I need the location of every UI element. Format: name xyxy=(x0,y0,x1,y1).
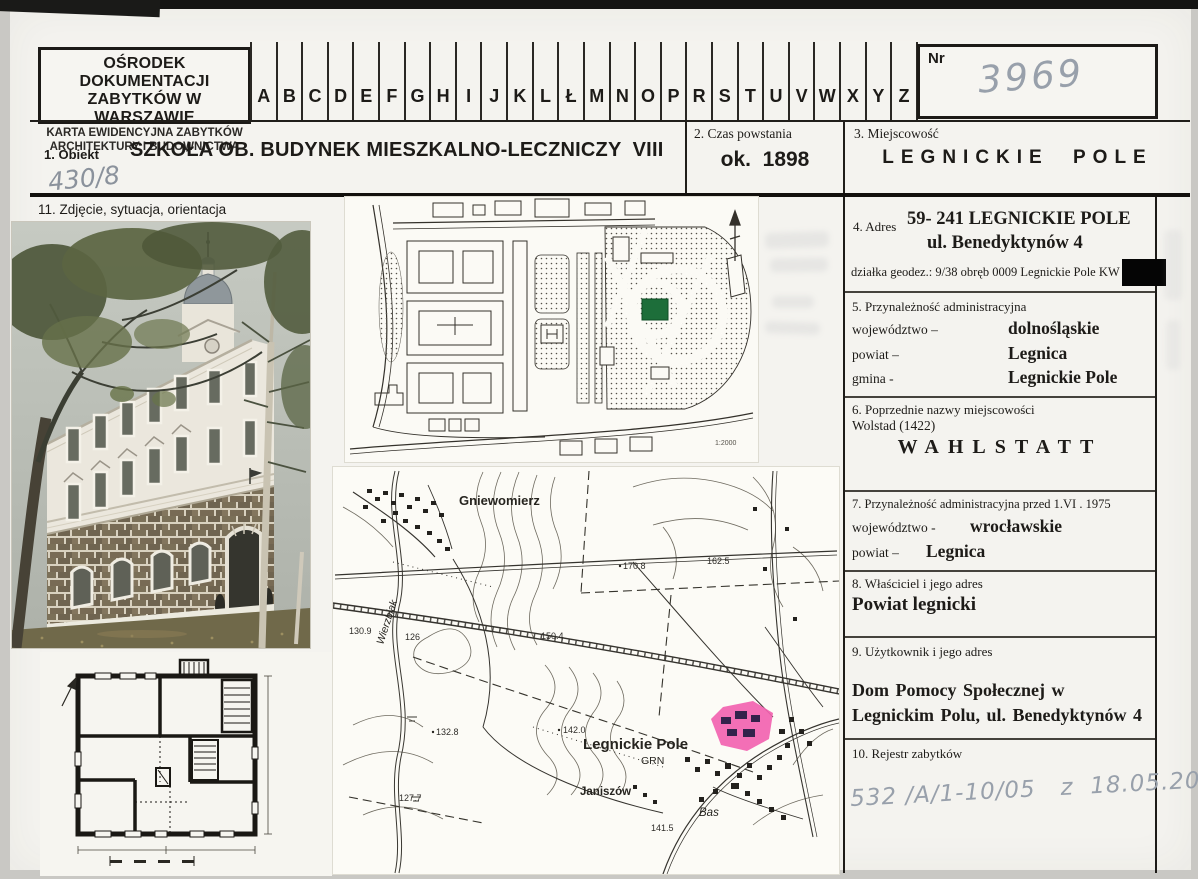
admin-before-row: województwo - wrocławskie xyxy=(852,516,1062,537)
index-letter: R xyxy=(685,42,711,120)
former-name-note: Wolstad (1422) xyxy=(852,418,935,434)
index-letter: O xyxy=(634,42,660,120)
index-letter: Ł xyxy=(557,42,583,120)
field-przynaleznosc-przed-1975: 7. Przynależność administracyjna przed 1… xyxy=(845,492,1155,572)
field-adres: 4. Adres 59- 241 LEGNICKIE POLE ul. Bene… xyxy=(845,197,1155,293)
map-label-grn: GRN xyxy=(641,755,664,767)
miejscowosc-label: 3. Miejscowość xyxy=(854,126,939,142)
index-letter: Z xyxy=(890,42,916,120)
institution-line1: OŚRODEK DOKUMENTACJI xyxy=(41,55,248,91)
field-wlasciciel: 8. Właściciel i jego adres Powiat legnic… xyxy=(845,572,1155,638)
map-label-gniewomierz: Gniewomierz xyxy=(459,493,540,508)
index-letter: S xyxy=(711,42,737,120)
scanned-heritage-card: OŚRODEK DOKUMENTACJI ZABYTKÓW W WARSZAWI… xyxy=(0,0,1198,879)
czas-value: ok. 1898 xyxy=(687,148,843,172)
index-letter: Y xyxy=(865,42,891,120)
index-letter: V xyxy=(788,42,814,120)
scan-edge-top xyxy=(0,0,1198,9)
map-label-bas: Bas xyxy=(699,807,719,819)
redaction-box xyxy=(1122,259,1166,286)
index-letter: F xyxy=(378,42,404,120)
owner-value: Powiat legnicki xyxy=(852,594,976,616)
index-letter: G xyxy=(404,42,430,120)
map-label-janiszow: Janiszów xyxy=(580,786,631,798)
index-letter: U xyxy=(762,42,788,120)
register-label: 10. Rejestr zabytków xyxy=(852,746,962,762)
highlighted-building-green xyxy=(642,299,668,320)
elevation-point: 127.7 xyxy=(399,793,422,803)
index-letter: D xyxy=(327,42,353,120)
obiekt-label: 1. Obiekt xyxy=(44,147,99,162)
user-value: Dom Pomocy Społecznej w Legnickim Polu, … xyxy=(852,678,1147,728)
adres-line1: 59- 241 LEGNICKIE POLE xyxy=(907,209,1131,230)
bleed-through-mark xyxy=(1166,320,1180,370)
field-poprzednie-nazwy: 6. Poprzednie nazwy miejscowości Wolstad… xyxy=(845,398,1155,492)
info-column: 4. Adres 59- 241 LEGNICKIE POLE ul. Bene… xyxy=(843,197,1157,873)
field-przynaleznosc-administracyjna: 5. Przynależność administracyjna wojewód… xyxy=(845,293,1155,398)
building-photo xyxy=(12,222,310,648)
elevation-point: 142.0 xyxy=(563,725,586,735)
elevation-point: 130.9 xyxy=(349,626,372,636)
adres-line3: działka geodez.: 9/38 obręb 0009 Legnick… xyxy=(851,259,1166,286)
elevation-point: 132.8 xyxy=(436,727,459,737)
obiekt-handwritten-number: 430/8 xyxy=(47,160,122,196)
zdjecie-label: 11. Zdjęcie, sytuacja, orientacja xyxy=(38,202,226,217)
elevation-point: 141.5 xyxy=(651,823,674,833)
map-label-legnickie-pole: Legnickie Pole xyxy=(583,736,688,753)
index-letter: J xyxy=(480,42,506,120)
nr-handwritten-value: 3969 xyxy=(977,51,1086,101)
register-handwritten-value: 532 /A/1-10/05 z 18.05.2005 xyxy=(850,766,1198,812)
nr-label: Nr xyxy=(928,50,945,67)
bleed-through-mark xyxy=(770,257,828,272)
admin-row: gmina - Legnickie Pole xyxy=(852,367,1117,388)
index-letter: P xyxy=(660,42,686,120)
index-letter: H xyxy=(429,42,455,120)
index-letter: X xyxy=(839,42,865,120)
index-letter: C xyxy=(301,42,327,120)
miejscowosc-value: LEGNICKIE POLE xyxy=(845,147,1190,169)
index-letter: N xyxy=(609,42,635,120)
elevation-point: 162.5 xyxy=(707,556,730,566)
adres-label: 4. Adres xyxy=(853,219,896,235)
field-uzytkownik: 9. Użytkownik i jego adres Dom Pomocy Sp… xyxy=(845,638,1155,740)
admin-label: 5. Przynależność administracyjna xyxy=(852,299,1026,315)
field-rejestr-zabytkow: 10. Rejestr zabytków 532 /A/1-10/05 z 18… xyxy=(845,740,1155,871)
field-czas-powstania: 2. Czas powstania ok. 1898 xyxy=(685,122,843,193)
index-letter: T xyxy=(737,42,763,120)
alphabet-index-strip: A B C D E F G H I J K L Ł M N O P R S T … xyxy=(250,42,918,120)
institution-header: OŚRODEK DOKUMENTACJI ZABYTKÓW W WARSZAWI… xyxy=(38,47,251,124)
index-letter: W xyxy=(813,42,839,120)
former-name-value: WAHLSTATT xyxy=(845,436,1155,459)
index-letter: L xyxy=(532,42,558,120)
field-miejscowosc: 3. Miejscowość LEGNICKIE POLE xyxy=(843,122,1190,193)
user-label: 9. Użytkownik i jego adres xyxy=(852,644,992,660)
field-obiekt: 1. Obiekt SZKOŁA OB. BUDYNEK MIESZKALNO-… xyxy=(30,122,685,193)
former-names-label: 6. Poprzednie nazwy miejscowości xyxy=(852,402,1035,418)
site-plan-map: 1:2000 xyxy=(345,197,758,462)
index-letter: I xyxy=(455,42,481,120)
admin-row: województwo – dolnośląskie xyxy=(852,318,1099,339)
admin-before-label: 7. Przynależność administracyjna przed 1… xyxy=(852,497,1111,512)
index-letter: M xyxy=(583,42,609,120)
site-plan-scale: 1:2000 xyxy=(715,440,737,447)
topographic-map: Gniewomierz Legnickie Pole GRN Janiszów … xyxy=(333,467,839,874)
bleed-through-mark xyxy=(765,231,830,249)
bleed-through-mark xyxy=(1164,230,1182,300)
admin-row: powiat – Legnica xyxy=(852,343,1067,364)
adres-line2: ul. Benedyktynów 4 xyxy=(927,233,1083,254)
obiekt-value: SZKOŁA OB. BUDYNEK MIESZKALNO-LECZNICZY … xyxy=(130,139,663,162)
main-fields-row: 1. Obiekt SZKOŁA OB. BUDYNEK MIESZKALNO-… xyxy=(30,120,1190,197)
bleed-through-mark xyxy=(772,296,814,308)
index-letter: K xyxy=(506,42,532,120)
bleed-through-mark xyxy=(765,321,820,335)
index-letter: B xyxy=(276,42,302,120)
elevation-point: 150.4 xyxy=(541,631,564,641)
admin-before-row: powiat – Legnica xyxy=(852,541,985,562)
floor-plan-drawing xyxy=(40,652,332,876)
elevation-point: 170.8 xyxy=(623,561,646,571)
czas-label: 2. Czas powstania xyxy=(694,126,792,142)
index-letter: A xyxy=(250,42,276,120)
elevation-point: 126 xyxy=(405,632,420,642)
index-letter: E xyxy=(352,42,378,120)
owner-label: 8. Właściciel i jego adres xyxy=(852,576,983,592)
card-number-box: Nr 3969 xyxy=(917,44,1158,119)
